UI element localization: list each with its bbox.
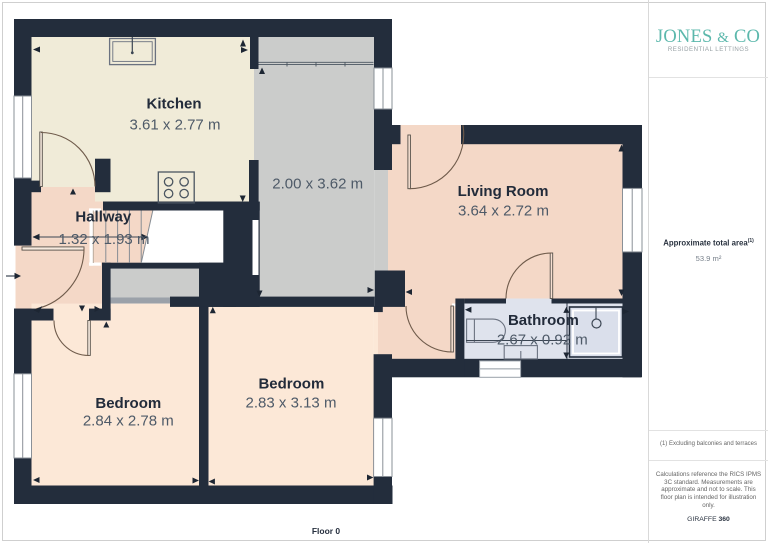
svg-text:Kitchen: Kitchen — [146, 96, 201, 113]
svg-text:Hallway: Hallway — [75, 208, 132, 225]
svg-text:2.84 x 2.78 m: 2.84 x 2.78 m — [83, 412, 174, 429]
svg-text:2.00 x 3.62 m: 2.00 x 3.62 m — [272, 175, 363, 192]
svg-text:Living Room: Living Room — [458, 183, 549, 200]
svg-text:Bedroom: Bedroom — [258, 375, 324, 392]
svg-text:3.64 x 2.72 m: 3.64 x 2.72 m — [458, 203, 549, 220]
svg-text:Bedroom: Bedroom — [95, 395, 161, 412]
svg-text:Bathroom: Bathroom — [508, 312, 579, 329]
svg-text:2.83 x 3.13 m: 2.83 x 3.13 m — [246, 395, 337, 412]
svg-text:Floor 0: Floor 0 — [312, 526, 341, 536]
svg-text:1.32 x 1.93 m: 1.32 x 1.93 m — [59, 231, 150, 248]
svg-text:3.61 x 2.77 m: 3.61 x 2.77 m — [130, 116, 221, 133]
svg-text:2.67 x 0.92 m: 2.67 x 0.92 m — [497, 332, 588, 349]
